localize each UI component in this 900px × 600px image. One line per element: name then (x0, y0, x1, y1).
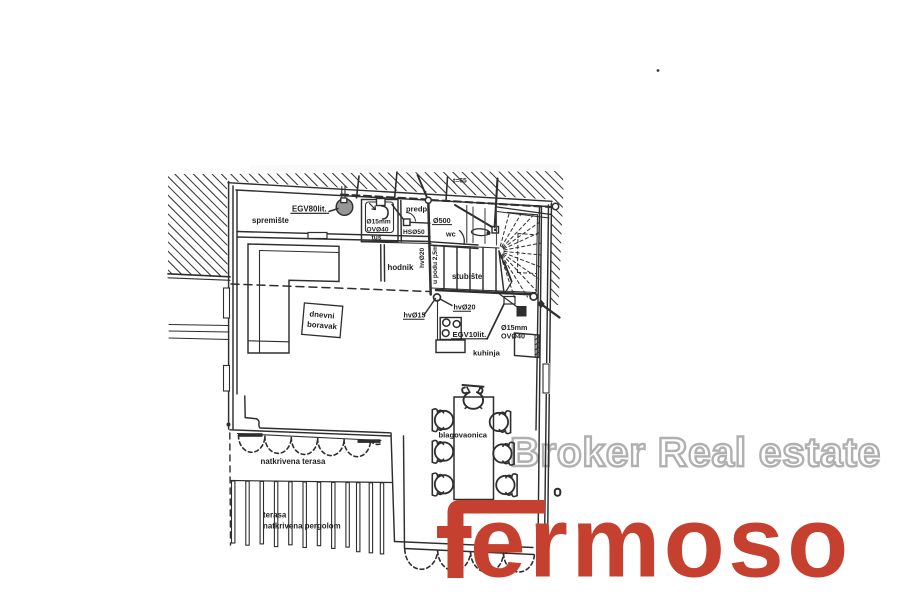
svg-text:EGV80lit.: EGV80lit. (292, 205, 327, 214)
svg-text:OVØ40: OVØ40 (367, 227, 389, 234)
svg-text:stubište: stubište (452, 272, 483, 281)
svg-text:Broker Real estate: Broker Real estate (510, 429, 881, 475)
svg-text:ermoso: ermoso (470, 487, 852, 599)
svg-text:EGV10lit.: EGV10lit. (453, 330, 487, 339)
svg-text:hvØ20: hvØ20 (454, 303, 476, 312)
svg-text:spremište: spremište (252, 216, 290, 225)
svg-text:terasa: terasa (263, 511, 287, 520)
svg-text:Ø15mm: Ø15mm (367, 219, 391, 226)
svg-text:hodnik: hodnik (388, 263, 414, 272)
svg-text:wc: wc (445, 230, 456, 239)
svg-text:Ø500: Ø500 (433, 216, 451, 225)
svg-text:blagovaonica: blagovaonica (439, 431, 488, 440)
svg-text:hvØ15: hvØ15 (404, 311, 426, 320)
svg-text:kuhinja: kuhinja (473, 349, 501, 358)
svg-text:predp.: predp. (406, 205, 429, 214)
svg-text:natkrivena pergolom: natkrivena pergolom (263, 522, 341, 531)
svg-text:hvØ20: hvØ20 (419, 248, 426, 268)
svg-text:HSØ50: HSØ50 (403, 229, 425, 236)
svg-text:t=65: t=65 (453, 178, 467, 185)
svg-text:natkrivena terasa: natkrivena terasa (261, 457, 327, 466)
svg-text:OVØ40: OVØ40 (501, 332, 525, 341)
svg-text:u podu 2,5m: u podu 2,5m (432, 245, 439, 284)
svg-text:tuš: tuš (372, 235, 382, 242)
